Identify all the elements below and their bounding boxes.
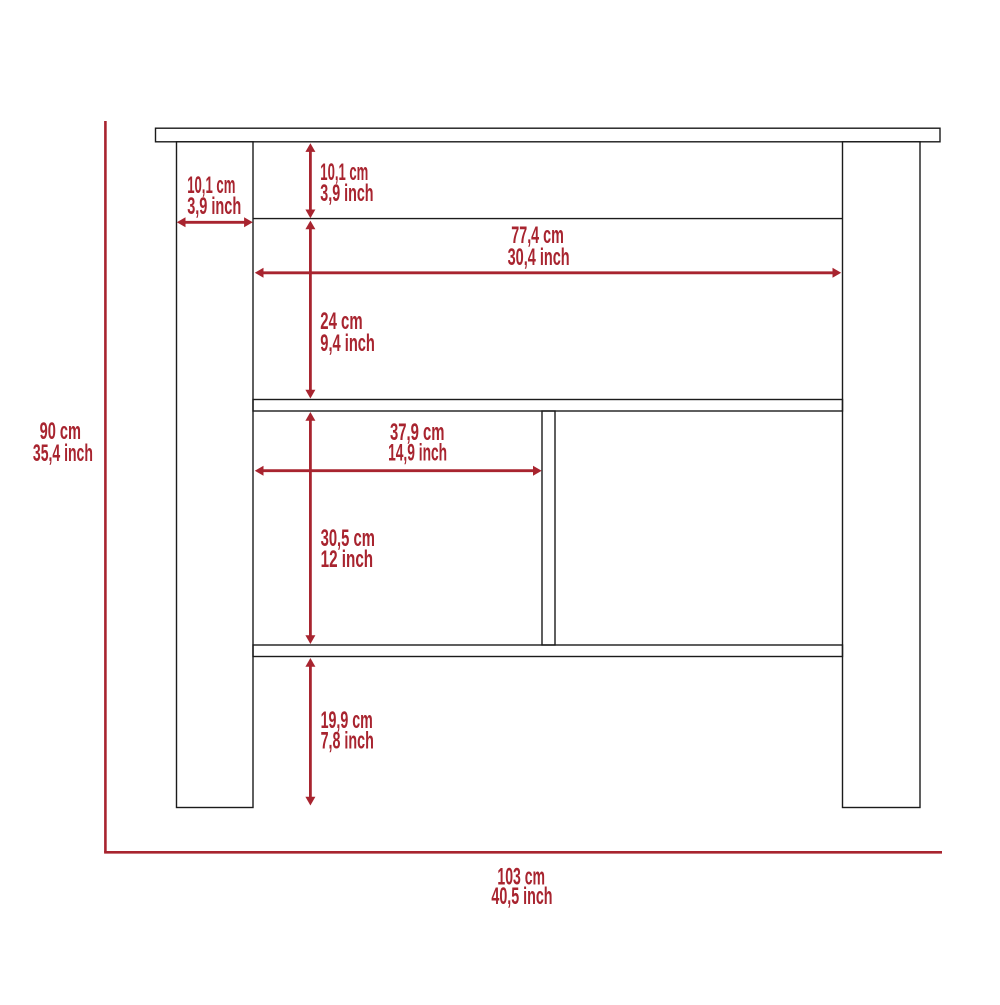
svg-text:3,9 inch: 3,9 inch — [320, 180, 373, 207]
svg-text:14,9 inch: 14,9 inch — [388, 440, 447, 467]
svg-text:9,4 inch: 9,4 inch — [320, 330, 375, 357]
svg-text:3,9 inch: 3,9 inch — [187, 193, 241, 220]
svg-text:12 inch: 12 inch — [321, 546, 374, 573]
svg-text:30,4 inch: 30,4 inch — [508, 244, 570, 271]
svg-text:40,5 inch: 40,5 inch — [491, 883, 552, 910]
svg-text:7,8 inch: 7,8 inch — [321, 727, 374, 754]
svg-text:35,4 inch: 35,4 inch — [33, 440, 93, 467]
